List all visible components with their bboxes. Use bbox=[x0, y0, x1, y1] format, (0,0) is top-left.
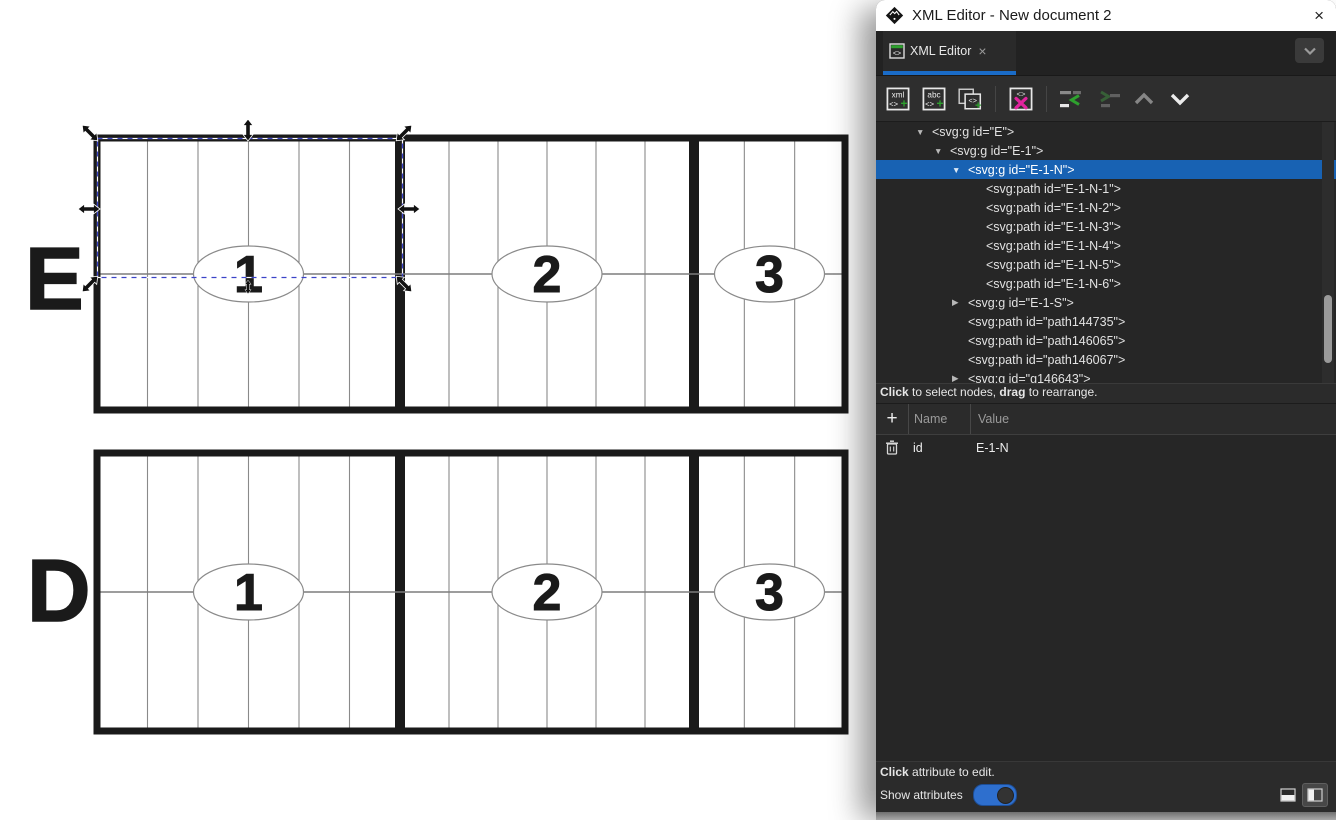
number-E-3[interactable]: 3 bbox=[755, 246, 784, 304]
close-icon[interactable]: × bbox=[1314, 7, 1324, 24]
svg-text:+: + bbox=[900, 96, 907, 110]
layout-vertical-button[interactable] bbox=[1302, 783, 1328, 807]
expand-icon[interactable]: ▶ bbox=[952, 373, 968, 383]
number-D-1[interactable]: 1 bbox=[234, 564, 263, 622]
number-E-1[interactable]: 1 bbox=[234, 246, 263, 304]
trash-icon bbox=[885, 440, 899, 455]
duplicate-node-icon: <> + bbox=[957, 87, 983, 111]
layout-horizontal-button[interactable] bbox=[1276, 784, 1300, 806]
tree-node[interactable]: ▼<svg:g id="E-1"> bbox=[876, 141, 1336, 160]
tree-node[interactable]: <svg:path id="path144735"> bbox=[876, 312, 1336, 331]
number-D-2[interactable]: 2 bbox=[533, 564, 562, 622]
number-E-2[interactable]: 2 bbox=[533, 246, 562, 304]
xml-editor-tab-icon: <> bbox=[889, 43, 905, 59]
tree-node[interactable]: ▶<svg:g id="E-1-S"> bbox=[876, 293, 1336, 312]
unindent-node-icon bbox=[1059, 89, 1085, 109]
tree-node[interactable]: <svg:path id="E-1-N-4"> bbox=[876, 236, 1336, 255]
svg-text:<>: <> bbox=[889, 99, 898, 108]
duplicate-node-button[interactable]: <> + bbox=[956, 85, 984, 113]
layout-vertical-icon bbox=[1307, 788, 1323, 802]
attributes-header: + Name Value bbox=[876, 404, 1336, 435]
tree-node[interactable]: ▶<svg:g id="g146643"> bbox=[876, 369, 1336, 383]
tab-xml-editor[interactable]: <> XML Editor × bbox=[883, 31, 1016, 75]
xml-tree[interactable]: ▼<svg:g id="E">▼<svg:g id="E-1">▼<svg:g … bbox=[876, 122, 1336, 383]
show-attributes-label: Show attributes bbox=[880, 788, 963, 802]
chevron-up-icon bbox=[1131, 90, 1157, 108]
tree-scrollbar[interactable] bbox=[1322, 122, 1334, 383]
collapse-icon[interactable]: ▼ bbox=[916, 127, 932, 137]
attributes-empty-area bbox=[876, 460, 1336, 761]
tree-node[interactable]: <svg:path id="E-1-N-6"> bbox=[876, 274, 1336, 293]
tree-node[interactable]: <svg:path id="path146065"> bbox=[876, 331, 1336, 350]
attribute-value[interactable]: E-1-N bbox=[969, 441, 1336, 455]
show-attributes-toggle[interactable] bbox=[973, 784, 1017, 806]
window-edge bbox=[876, 812, 1336, 820]
dialog-footer: Click attribute to edit. Show attributes bbox=[876, 761, 1336, 812]
number-D-3[interactable]: 3 bbox=[755, 564, 784, 622]
indent-node-icon bbox=[1095, 89, 1121, 109]
tree-node-label: <svg:g id="g146643"> bbox=[968, 372, 1091, 384]
svg-text:<>: <> bbox=[1017, 89, 1026, 98]
collapse-icon[interactable]: ▼ bbox=[952, 165, 968, 175]
dialog-tabbar: <> XML Editor × bbox=[876, 31, 1336, 76]
tree-node-label: <svg:path id="E-1-N-2"> bbox=[986, 201, 1121, 215]
move-node-down-button[interactable] bbox=[1166, 85, 1194, 113]
tree-node[interactable]: <svg:path id="E-1-N-1"> bbox=[876, 179, 1336, 198]
tree-node-label: <svg:g id="E"> bbox=[932, 125, 1014, 139]
tree-status-text: Click to select nodes, drag to rearrange… bbox=[876, 383, 1336, 404]
dialog-title: XML Editor - New document 2 bbox=[912, 7, 1112, 24]
tree-node[interactable]: <svg:path id="E-1-N-5"> bbox=[876, 255, 1336, 274]
new-text-node-icon: abc <> + bbox=[922, 87, 946, 111]
toolbar-separator bbox=[1046, 86, 1047, 112]
attribute-row[interactable]: id E-1-N bbox=[876, 435, 1336, 460]
tab-label: XML Editor bbox=[910, 44, 971, 58]
attribute-name[interactable]: id bbox=[908, 441, 969, 455]
tree-node-label: <svg:path id="path144735"> bbox=[968, 315, 1125, 329]
tree-node[interactable]: <svg:path id="E-1-N-3"> bbox=[876, 217, 1336, 236]
row-letter-E[interactable]: E bbox=[25, 229, 84, 328]
tree-node-label: <svg:path id="E-1-N-5"> bbox=[986, 258, 1121, 272]
dialog-titlebar[interactable]: XML Editor - New document 2 × bbox=[876, 0, 1336, 31]
svg-text:<>: <> bbox=[893, 51, 901, 58]
move-node-up-button[interactable] bbox=[1130, 85, 1158, 113]
tree-node-label: <svg:g id="E-1-S"> bbox=[968, 296, 1074, 310]
toolbar-separator bbox=[995, 86, 996, 112]
add-attribute-button[interactable]: + bbox=[876, 404, 909, 434]
chevron-down-icon bbox=[1167, 90, 1193, 108]
tree-node-label: <svg:g id="E-1-N"> bbox=[968, 163, 1075, 177]
xml-toolbar: xml <> + abc <> + <> + bbox=[876, 76, 1336, 122]
row-letter-D[interactable]: D bbox=[27, 541, 91, 640]
delete-node-button[interactable]: <> bbox=[1007, 85, 1035, 113]
unindent-node-button[interactable] bbox=[1058, 85, 1086, 113]
svg-text:<>: <> bbox=[925, 99, 934, 108]
tree-node-label: <svg:path id="path146067"> bbox=[968, 353, 1125, 367]
xml-editor-dialog: XML Editor - New document 2 × <> XML Edi… bbox=[876, 0, 1336, 812]
tree-scrollbar-thumb[interactable] bbox=[1324, 295, 1332, 363]
attribute-hint-text: Click attribute to edit. bbox=[880, 765, 1328, 779]
tree-node-label: <svg:path id="E-1-N-4"> bbox=[986, 239, 1121, 253]
chevron-down-icon bbox=[1303, 46, 1317, 56]
toggle-knob bbox=[997, 787, 1014, 804]
delete-node-icon: <> bbox=[1009, 87, 1033, 111]
tree-node[interactable]: ▼<svg:g id="E"> bbox=[876, 122, 1336, 141]
attributes-name-header: Name bbox=[909, 404, 971, 434]
tree-node-label: <svg:path id="path146065"> bbox=[968, 334, 1125, 348]
new-element-node-button[interactable]: xml <> + bbox=[884, 85, 912, 113]
new-text-node-button[interactable]: abc <> + bbox=[920, 85, 948, 113]
inkscape-logo-icon bbox=[885, 6, 904, 25]
indent-node-button[interactable] bbox=[1094, 85, 1122, 113]
tree-node[interactable]: ▼<svg:g id="E-1-N"> bbox=[876, 160, 1336, 179]
tree-node[interactable]: <svg:path id="E-1-N-2"> bbox=[876, 198, 1336, 217]
layout-horizontal-icon bbox=[1280, 788, 1296, 802]
delete-attribute-button[interactable] bbox=[876, 440, 908, 455]
svg-text:+: + bbox=[936, 96, 943, 110]
tab-close-icon[interactable]: × bbox=[978, 43, 986, 59]
selection-handle-nw[interactable] bbox=[79, 122, 102, 145]
drawing-canvas[interactable]: 123E123D bbox=[0, 0, 876, 820]
inkscape-window: 123E123D XML Editor - New document 2 × <… bbox=[0, 0, 1336, 820]
tree-node[interactable]: <svg:path id="path146067"> bbox=[876, 350, 1336, 369]
tree-node-label: <svg:path id="E-1-N-1"> bbox=[986, 182, 1121, 196]
panel-menu-button[interactable] bbox=[1295, 38, 1324, 63]
tree-node-label: <svg:path id="E-1-N-3"> bbox=[986, 220, 1121, 234]
new-element-node-icon: xml <> + bbox=[886, 87, 910, 111]
tree-node-label: <svg:g id="E-1"> bbox=[950, 144, 1043, 158]
collapse-icon[interactable]: ▼ bbox=[934, 146, 950, 156]
tree-node-label: <svg:path id="E-1-N-6"> bbox=[986, 277, 1121, 291]
attributes-value-header: Value bbox=[971, 412, 1336, 426]
expand-icon[interactable]: ▶ bbox=[952, 297, 968, 308]
svg-text:+: + bbox=[975, 100, 981, 111]
